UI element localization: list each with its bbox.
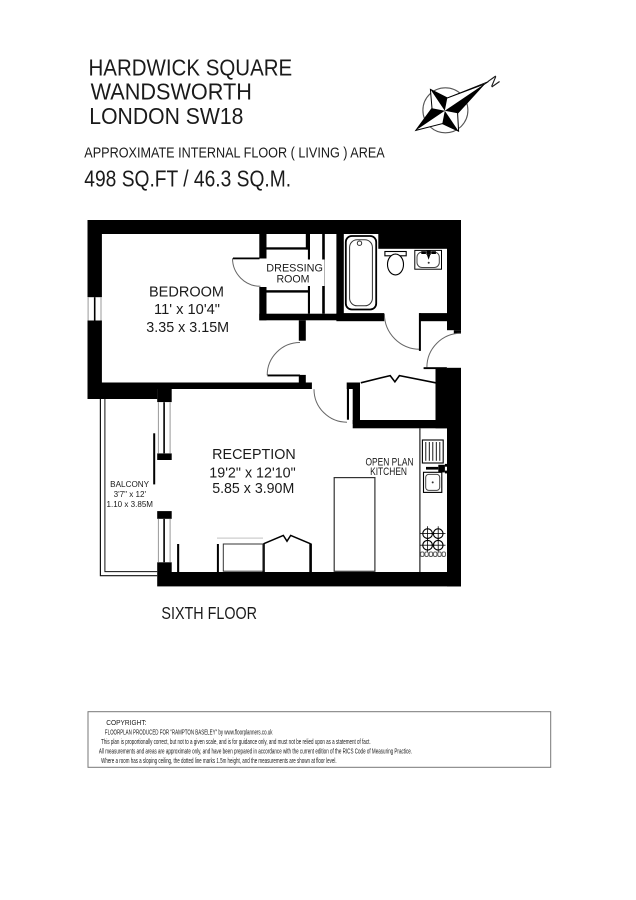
svg-text:HARDWICK SQUARE: HARDWICK SQUARE bbox=[89, 54, 293, 80]
svg-text:KITCHEN: KITCHEN bbox=[370, 466, 407, 478]
svg-text:11' x 10'4": 11' x 10'4" bbox=[154, 302, 220, 318]
svg-text:APPROXIMATE INTERNAL FLOOR ( L: APPROXIMATE INTERNAL FLOOR ( LIVING ) AR… bbox=[84, 144, 384, 161]
svg-text:3'7" x 12': 3'7" x 12' bbox=[114, 490, 147, 499]
svg-text:WANDSWORTH: WANDSWORTH bbox=[91, 78, 252, 104]
svg-text:1.10 x 3.85M: 1.10 x 3.85M bbox=[107, 500, 154, 509]
svg-text:498 SQ.FT / 46.3 SQ.M.: 498 SQ.FT / 46.3 SQ.M. bbox=[84, 166, 291, 192]
svg-text:5.85 x 3.90M: 5.85 x 3.90M bbox=[212, 481, 294, 497]
svg-text:BEDROOM: BEDROOM bbox=[149, 284, 224, 300]
svg-text:FLOORPLAN PRODUCED FOR "RAMPTO: FLOORPLAN PRODUCED FOR "RAMPTON BASELEY"… bbox=[105, 728, 273, 737]
svg-text:3.35 x 3.15M: 3.35 x 3.15M bbox=[146, 320, 229, 336]
svg-text:BALCONY: BALCONY bbox=[110, 480, 150, 489]
svg-text:All measurements and areas are: All measurements and areas are approxima… bbox=[99, 747, 412, 756]
svg-text:RECEPTION: RECEPTION bbox=[212, 447, 296, 463]
svg-text:SIXTH FLOOR: SIXTH FLOOR bbox=[161, 603, 257, 623]
svg-text:19'2" x 12'10": 19'2" x 12'10" bbox=[209, 465, 295, 481]
svg-text:LONDON SW18: LONDON SW18 bbox=[89, 103, 243, 129]
svg-text:Where a room has a sloping cei: Where a room has a sloping ceiling, the … bbox=[101, 756, 337, 765]
svg-text:ROOM: ROOM bbox=[277, 274, 310, 286]
svg-text:COPYRIGHT:: COPYRIGHT: bbox=[106, 718, 146, 727]
svg-text:This plan is proportionally co: This plan is proportionally correct, but… bbox=[101, 737, 371, 746]
